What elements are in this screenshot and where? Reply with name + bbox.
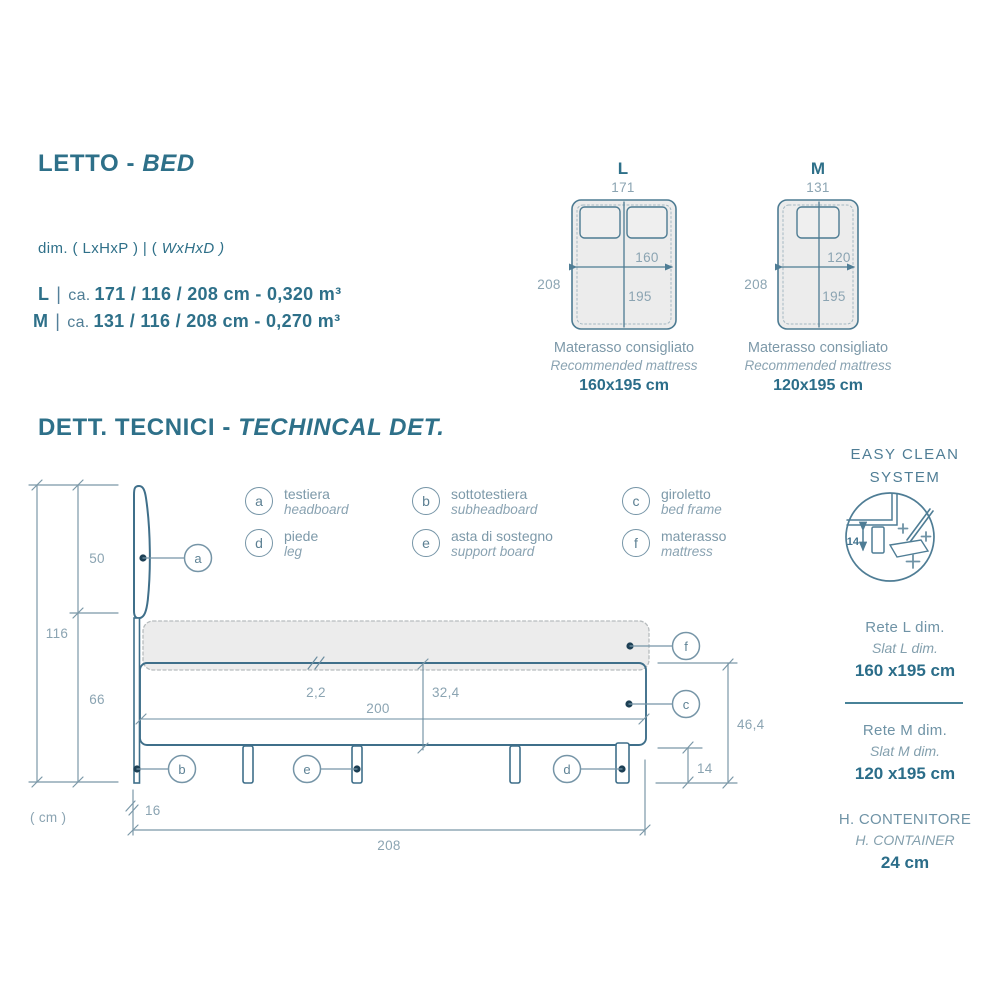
bed-l-mattress-width-label: 160 <box>635 250 658 265</box>
legend-a-en: headboard <box>284 502 349 518</box>
spec-row-m-key: M <box>33 311 48 331</box>
headboard-height-label: 50 <box>89 551 105 566</box>
panel-slat-m: Rete M dim. Slat M dim. 120 x195 cm <box>825 721 985 785</box>
left-dimension-lines <box>29 480 118 787</box>
bed-l-title: L <box>618 159 628 178</box>
easy-clean-icon: 14 <box>846 493 934 581</box>
bed-frame-shape <box>140 663 646 745</box>
unit-label: ( cm ) <box>30 810 66 825</box>
inner-length-label: 200 <box>366 701 389 716</box>
bed-l-caption-en: Recommended mattress <box>534 357 714 374</box>
bed-l-width-label: 171 <box>611 180 634 195</box>
bed-m-caption-it: Materasso consigliato <box>728 340 908 357</box>
spec-row-l-key: L <box>38 284 49 304</box>
leg-3 <box>510 746 520 783</box>
page-title: LETTO - BED <box>38 150 195 178</box>
bed-l-mattress-length-label: 195 <box>628 289 651 304</box>
legend-item-headboard: a testiera headboard <box>245 487 349 518</box>
frame-thickness-label: 2,2 <box>306 685 326 700</box>
legend-a-it: testiera <box>284 487 349 502</box>
bed-m-title: M <box>811 159 825 178</box>
spec-row-m-pipe: | <box>48 311 67 331</box>
panel-slat-m-value: 120 x195 cm <box>825 762 985 785</box>
legend-e-en: support board <box>451 544 553 560</box>
bed-l-caption-size: 160x195 cm <box>534 375 714 396</box>
legend-d-circle: d <box>245 529 273 557</box>
base-height-label: 66 <box>89 692 105 707</box>
legend-b-circle: b <box>412 487 440 515</box>
leg-2-support <box>352 746 362 783</box>
callout-f-letter: f <box>684 639 688 654</box>
legend-b-it: sottotestiera <box>451 487 537 502</box>
total-height-label: 116 <box>46 626 68 641</box>
spec-row-l-approx: ca. <box>68 287 94 304</box>
dims-caption-accent: WxHxD ) <box>162 240 225 257</box>
page-title-en: BED <box>142 150 194 177</box>
bed-l-caption: Materasso consigliato Recommended mattre… <box>534 340 714 396</box>
panel-container-height: H. CONTENITORE H. CONTAINER 24 cm <box>825 810 985 874</box>
easy-clean-title-line1: EASY CLEAN <box>825 443 985 466</box>
total-depth-label: 208 <box>377 838 400 853</box>
panel-container-value: 24 cm <box>825 851 985 874</box>
legend-d-it: piede <box>284 529 318 544</box>
legend-e-circle: e <box>412 529 440 557</box>
callout-d-letter: d <box>563 762 570 777</box>
frame-height-label: 32,4 <box>432 685 460 700</box>
tech-title: DETT. TECNICI - TECHINCAL DET. <box>38 414 444 442</box>
spec-row-l: L|ca.171 / 116 / 208 cm - 0,320 m³ <box>38 284 341 305</box>
page-title-it: LETTO - <box>38 150 135 177</box>
legend-item-subheadboard: b sottotestiera subheadboard <box>412 487 537 518</box>
callout-c-letter: c <box>683 697 690 712</box>
spec-row-l-value: 171 / 116 / 208 cm - 0,320 m³ <box>95 284 342 304</box>
easy-clean-leg-height: 14 <box>847 536 860 548</box>
dims-caption-main: dim. ( LxHxP ) | ( <box>38 240 157 257</box>
panel-container-title: H. CONTENITORE <box>825 810 985 830</box>
legend-f-it: materasso <box>661 529 726 544</box>
easy-clean-title: EASY CLEAN SYSTEM <box>825 443 985 489</box>
leg-4 <box>616 743 629 783</box>
spec-row-m-approx: ca. <box>67 314 93 331</box>
panel-slat-l-subtitle: Slat L dim. <box>825 638 985 659</box>
bed-m-mattress-length-label: 195 <box>822 289 845 304</box>
legend-item-support-board: e asta di sostegno support board <box>412 529 553 560</box>
legend-c-en: bed frame <box>661 502 722 518</box>
bed-spec-sheet: 171 208 160 195 L 131 208 120 195 M <box>0 0 1000 1000</box>
legend-item-mattress: f materasso mattress <box>622 529 726 560</box>
box-height-label: 46,4 <box>737 717 765 732</box>
bed-l-caption-it: Materasso consigliato <box>534 340 714 357</box>
spec-row-m-value: 131 / 116 / 208 cm - 0,270 m³ <box>94 311 341 331</box>
leg-height-label: 14 <box>697 761 713 776</box>
bed-l-depth-label: 208 <box>537 277 560 292</box>
bed-m-pillow <box>797 207 839 238</box>
panel-slat-m-title: Rete M dim. <box>825 721 985 741</box>
legend-item-bed-frame: c giroletto bed frame <box>622 487 722 518</box>
panel-slat-l-value: 160 x195 cm <box>825 659 985 682</box>
bed-m-caption: Materasso consigliato Recommended mattre… <box>728 340 908 396</box>
headboard-shape <box>134 486 150 618</box>
legend-c-it: giroletto <box>661 487 722 502</box>
bed-leg-icon <box>872 527 884 553</box>
legend-e-it: asta di sostegno <box>451 529 553 544</box>
legend-f-en: mattress <box>661 544 726 560</box>
panel-slat-l-title: Rete L dim. <box>825 618 985 638</box>
leg-1 <box>243 746 253 783</box>
callout-b-letter: b <box>178 762 185 777</box>
spec-row-l-pipe: | <box>49 284 68 304</box>
easy-clean-title-line2: SYSTEM <box>825 466 985 489</box>
legend-f-circle: f <box>622 529 650 557</box>
legend-item-leg: d piede leg <box>245 529 318 560</box>
bed-m-caption-size: 120x195 cm <box>728 375 908 396</box>
bed-l-pillow-left <box>580 207 620 238</box>
panel-slat-m-subtitle: Slat M dim. <box>825 741 985 762</box>
legend-a-circle: a <box>245 487 273 515</box>
legend-b-en: subheadboard <box>451 502 537 518</box>
bed-m-mattress-width-label: 120 <box>827 250 850 265</box>
legend-c-circle: c <box>622 487 650 515</box>
tech-title-it: DETT. TECNICI - <box>38 414 231 441</box>
bed-m-width-label: 131 <box>806 180 829 195</box>
subheadboard-shape <box>134 618 140 783</box>
callout-a-letter: a <box>194 551 202 566</box>
panel-slat-l: Rete L dim. Slat L dim. 160 x195 cm <box>825 618 985 682</box>
bed-m-depth-label: 208 <box>744 277 767 292</box>
callout-e-letter: e <box>303 762 310 777</box>
bed-l-pillow-right <box>627 207 667 238</box>
headboard-depth-label: 16 <box>145 803 161 818</box>
top-view-m: 131 208 120 195 M <box>744 159 858 329</box>
tech-title-en: TECHINCAL DET. <box>238 414 444 441</box>
dimension-ticks <box>126 659 733 835</box>
dims-caption: dim. ( LxHxP ) | ( WxHxD ) <box>38 240 225 257</box>
top-view-l: 171 208 160 195 L <box>537 159 676 329</box>
bed-m-caption-en: Recommended mattress <box>728 357 908 374</box>
spec-row-m: M|ca.131 / 116 / 208 cm - 0,270 m³ <box>33 311 340 332</box>
panel-container-subtitle: H. CONTAINER <box>825 830 985 851</box>
legend-d-en: leg <box>284 544 318 560</box>
